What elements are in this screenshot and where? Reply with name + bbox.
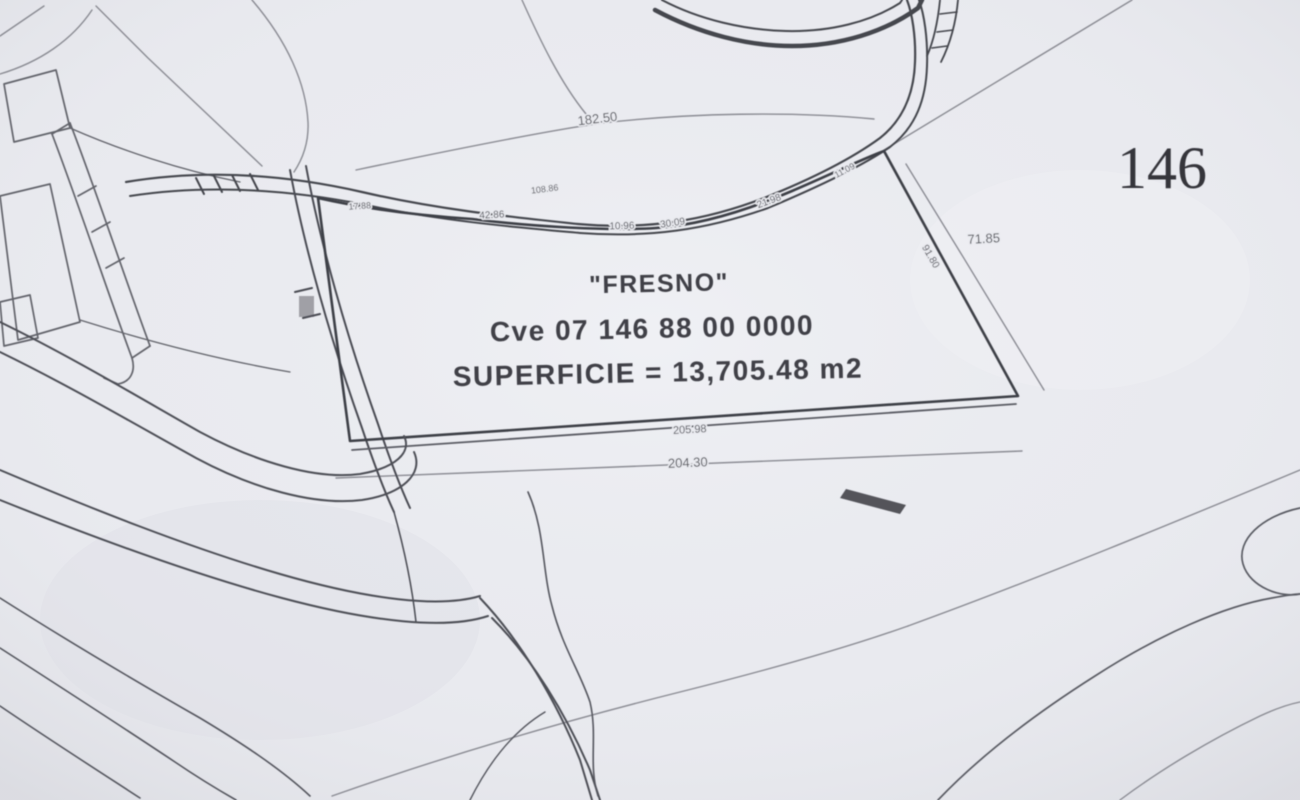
parcel-name-label: "FRESNO" xyxy=(589,268,729,299)
dim-bottom-inner-label: 205.98 xyxy=(673,423,707,437)
edge-dim-label: 17.88 xyxy=(348,200,371,212)
dim-right-label: 71.85 xyxy=(967,230,1000,247)
paper-smudge xyxy=(40,500,480,740)
scanned-map-sheet: 146 "FRESNO" Cve 07 146 88 00 0000 SUPER… xyxy=(0,0,1300,800)
map-drawing: 146 "FRESNO" Cve 07 146 88 00 0000 SUPER… xyxy=(0,0,1300,800)
paper-smudge xyxy=(910,170,1250,390)
edge-dim-label: 42.86 xyxy=(479,209,505,221)
sheet-number: 146 xyxy=(1117,135,1207,201)
edge-dim-label: 10.96 xyxy=(609,221,635,233)
strip-patch xyxy=(299,296,314,317)
dim-bottom-label: 204.30 xyxy=(668,454,708,471)
